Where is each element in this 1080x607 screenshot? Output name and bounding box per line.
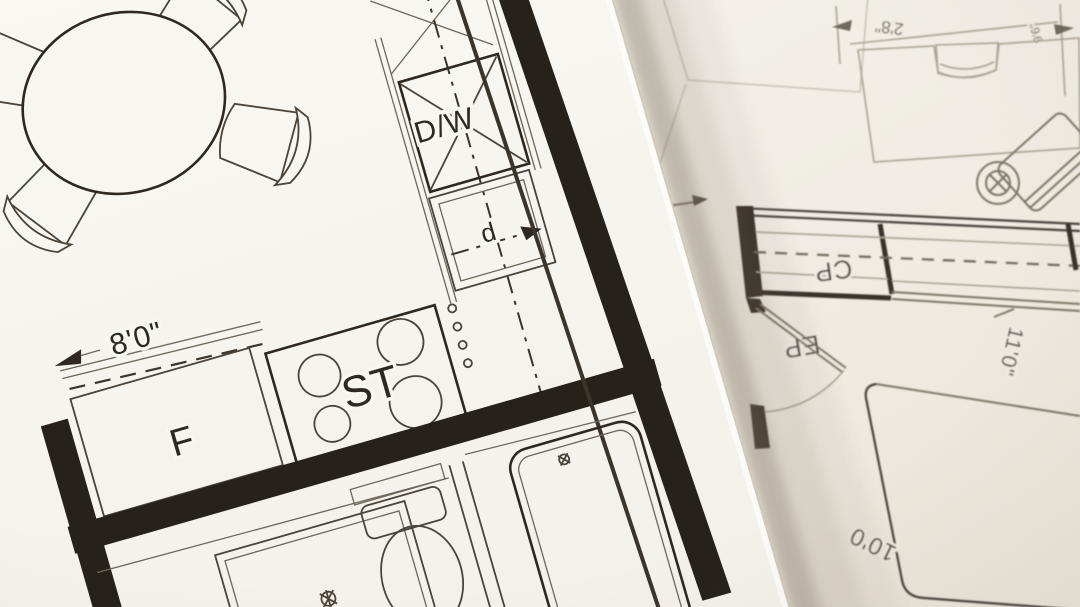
blueprint-photo: 2'8" 9'6" [0, 0, 1080, 607]
vignette [0, 0, 1080, 607]
floor-plan-scene: 2'8" 9'6" [0, 0, 1080, 607]
